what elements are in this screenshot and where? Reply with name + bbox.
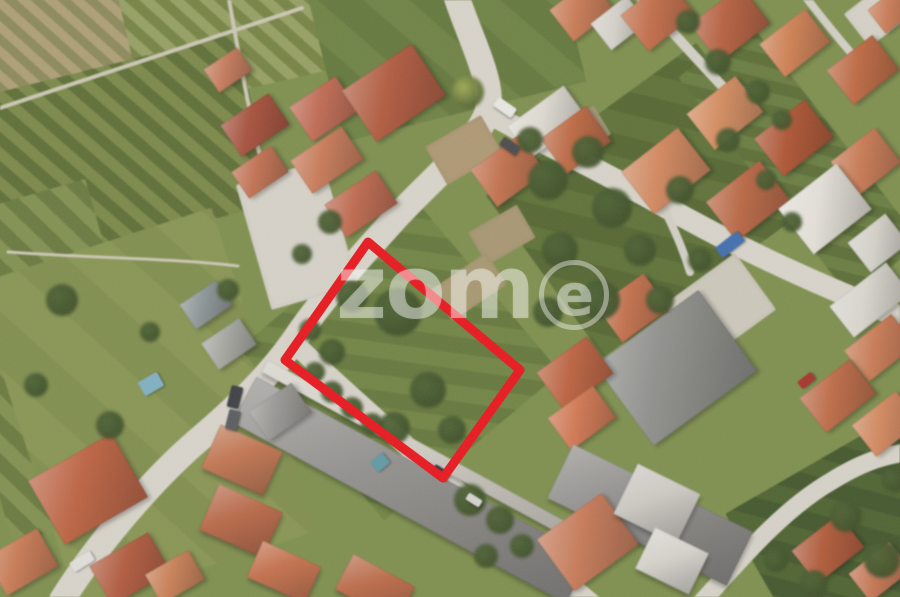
watermark-text: zom: [336, 244, 533, 332]
aerial-photo: zome: [0, 0, 900, 597]
zome-watermark: zome: [336, 244, 609, 332]
watermark-ringed-e: e: [539, 260, 609, 330]
